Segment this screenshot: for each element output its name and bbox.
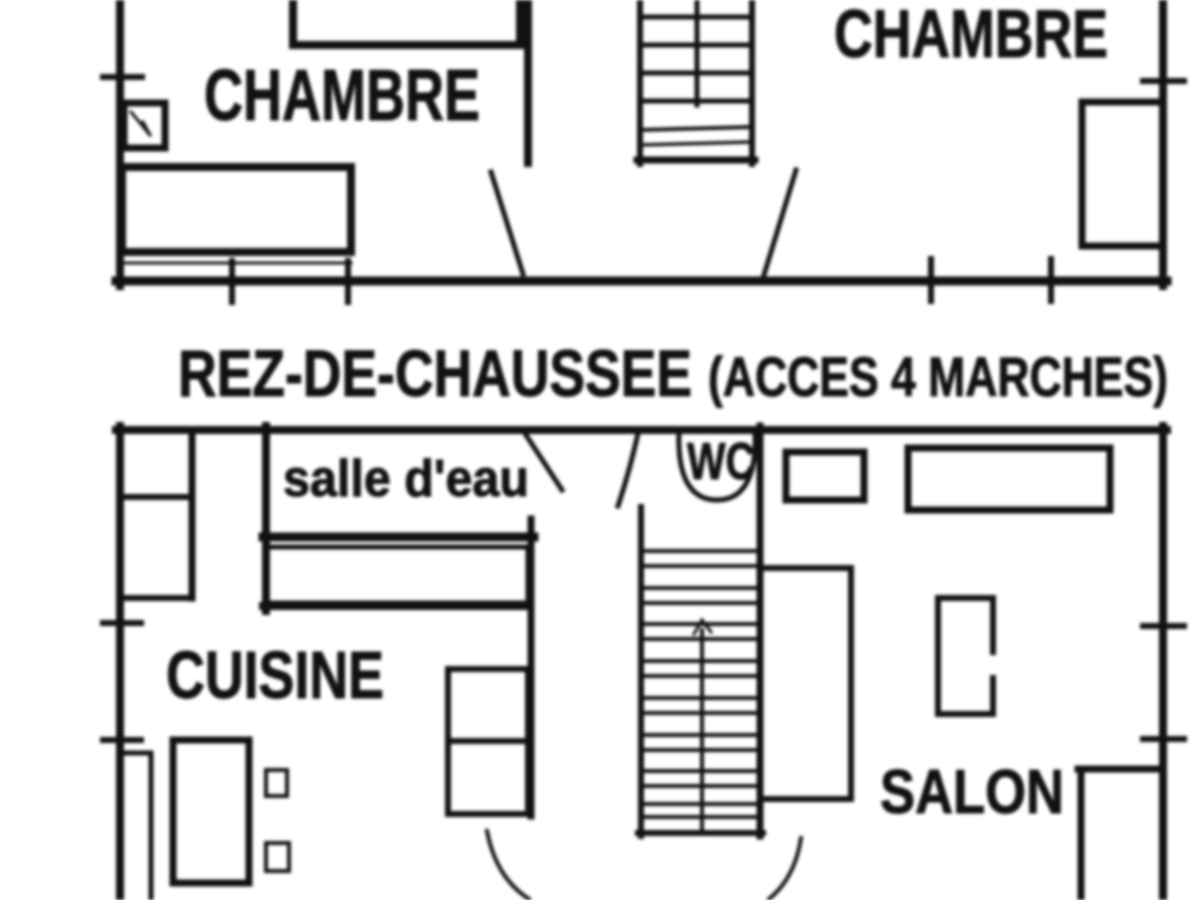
svg-text:CUISINE: CUISINE [166,638,384,713]
svg-text:WC: WC [687,433,755,491]
svg-text:CHAMBRE: CHAMBRE [204,56,480,136]
svg-text:CHAMBRE: CHAMBRE [834,0,1108,72]
svg-text:(ACCES 4 MARCHES): (ACCES 4 MARCHES) [708,345,1168,408]
svg-text:REZ-DE-CHAUSSEE: REZ-DE-CHAUSSEE [178,336,692,410]
svg-text:salle d'eau: salle d'eau [283,450,529,508]
svg-text:SALON: SALON [880,758,1064,827]
